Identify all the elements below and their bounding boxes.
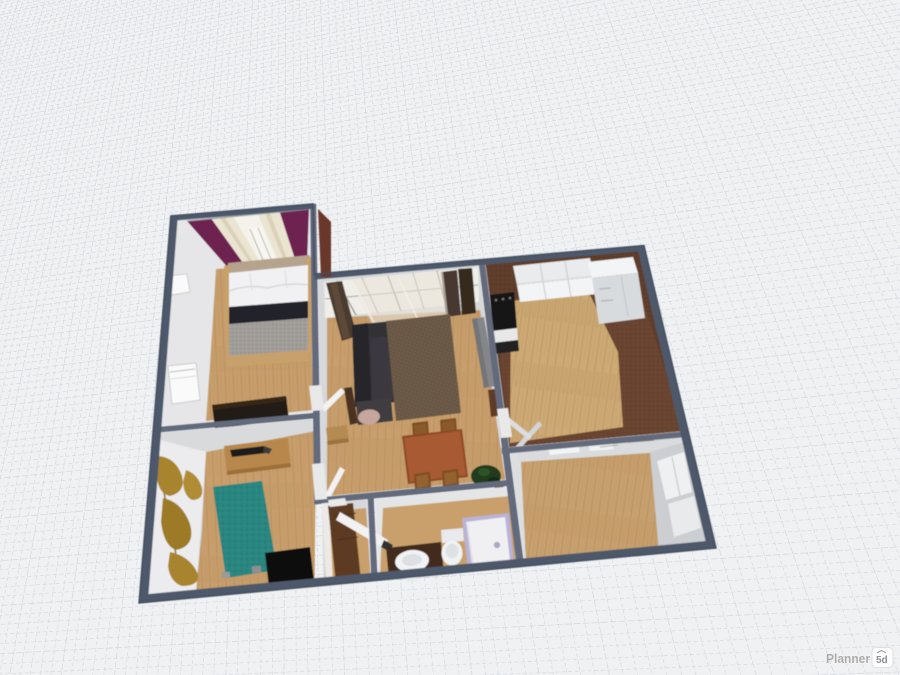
svg-text:Planner: Planner bbox=[826, 651, 870, 666]
svg-text:5d: 5d bbox=[876, 655, 888, 666]
